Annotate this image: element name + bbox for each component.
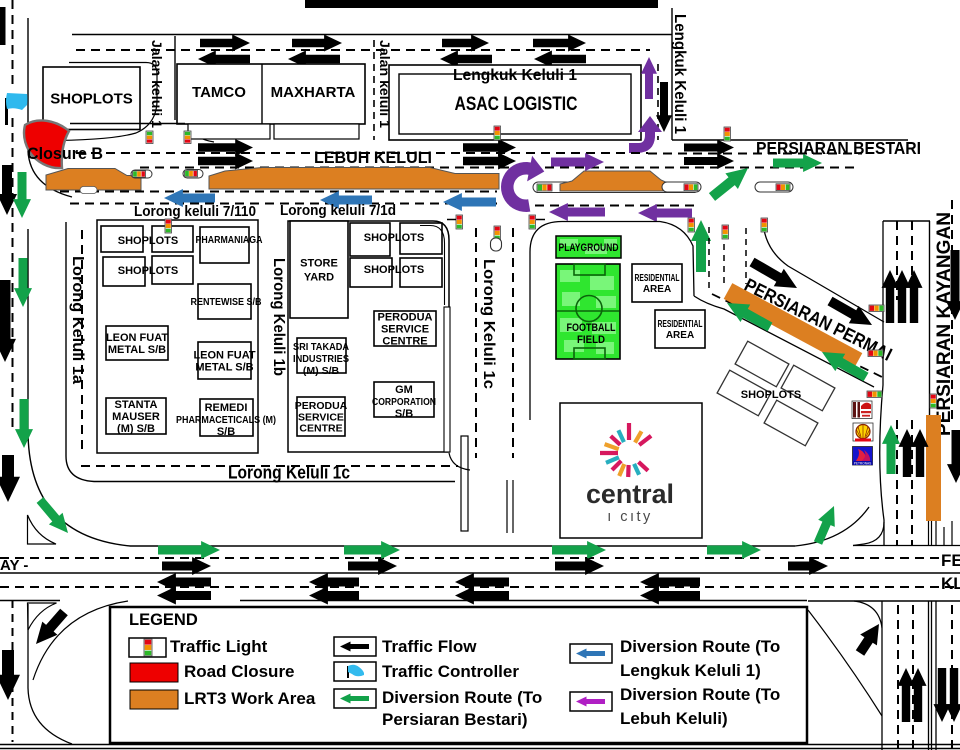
svg-text:PLAYGROUND: PLAYGROUND [559, 242, 619, 254]
svg-text:Lengkuk Keluli 1): Lengkuk Keluli 1) [620, 661, 761, 680]
svg-text:RENTEWISE S/B: RENTEWISE S/B [191, 296, 262, 308]
svg-text:METAL S/B: METAL S/B [195, 361, 253, 373]
svg-text:FOOTBALL: FOOTBALL [567, 322, 616, 334]
svg-text:Lorong Keluli 1c: Lorong Keluli 1c [480, 259, 497, 389]
svg-text:Lorong Keluli 1b: Lorong Keluli 1b [270, 258, 287, 376]
svg-text:Lengkuk Keluli 1: Lengkuk Keluli 1 [453, 67, 577, 84]
svg-text:REMEDI: REMEDI [205, 402, 248, 414]
svg-text:LEBUH KELULI: LEBUH KELULI [314, 148, 432, 167]
svg-text:LEGEND: LEGEND [129, 611, 198, 629]
svg-text:KL: KL [941, 574, 960, 593]
svg-text:central: central [586, 479, 674, 509]
svg-text:MAUSER: MAUSER [112, 411, 160, 423]
svg-text:AREA: AREA [666, 330, 694, 341]
svg-text:ı cıty: ı cıty [607, 509, 653, 525]
svg-text:LRT3 Work Area: LRT3 Work Area [184, 689, 316, 708]
svg-text:Lorong keluli 7/110: Lorong keluli 7/110 [134, 203, 256, 220]
svg-text:AREA: AREA [643, 284, 671, 295]
svg-text:SERVICE: SERVICE [298, 411, 344, 423]
svg-text:PERSIARAN KAYANGAN: PERSIARAN KAYANGAN [934, 212, 955, 436]
svg-text:MAXHARTA: MAXHARTA [271, 84, 356, 101]
svg-text:PERSIARAN BESTARI: PERSIARAN BESTARI [756, 138, 921, 158]
svg-text:S/B: S/B [395, 408, 413, 420]
svg-text:Diversion Route (To: Diversion Route (To [620, 637, 780, 656]
svg-text:YARD: YARD [304, 272, 334, 284]
svg-text:FIELD: FIELD [577, 334, 605, 346]
svg-text:SHOPLOTS: SHOPLOTS [364, 264, 425, 276]
svg-text:CORPORATION: CORPORATION [372, 396, 436, 408]
svg-text:SERVICE: SERVICE [381, 324, 429, 336]
svg-text:Lorong Keluli 1a: Lorong Keluli 1a [69, 256, 86, 384]
svg-text:SHOPLOTS: SHOPLOTS [50, 91, 133, 108]
svg-text:RESIDENTIAL: RESIDENTIAL [658, 319, 703, 330]
svg-text:Traffic Light: Traffic Light [170, 637, 268, 656]
svg-text:PHARMACETICALS (M): PHARMACETICALS (M) [176, 414, 276, 426]
svg-text:PERODUA: PERODUA [295, 400, 348, 412]
svg-text:AY -: AY - [0, 557, 28, 574]
svg-text:PERODUA: PERODUA [377, 312, 432, 324]
svg-text:Jalan keluli 1: Jalan keluli 1 [149, 40, 165, 128]
svg-text:Lengkuk Keluli 1: Lengkuk Keluli 1 [671, 14, 688, 134]
svg-text:Diversion Route (To: Diversion Route (To [620, 685, 780, 704]
svg-text:SHOPLOTS: SHOPLOTS [364, 232, 425, 244]
svg-text:SHOPLOTS: SHOPLOTS [118, 265, 179, 277]
svg-text:Road Closure: Road Closure [184, 662, 295, 681]
svg-text:S/B: S/B [217, 426, 235, 438]
svg-text:Lorong keluli 7/1d: Lorong keluli 7/1d [280, 202, 396, 219]
svg-text:METAL S/B: METAL S/B [108, 344, 166, 356]
svg-text:PETRONAS: PETRONAS [854, 461, 872, 465]
svg-text:LEON FUAT: LEON FUAT [106, 332, 168, 344]
svg-text:SHOPLOTS: SHOPLOTS [741, 389, 802, 401]
svg-text:RESIDENTIAL: RESIDENTIAL [635, 273, 680, 284]
svg-text:SHOPLOTS: SHOPLOTS [118, 235, 179, 247]
svg-text:LEON FUAT: LEON FUAT [193, 350, 255, 362]
svg-text:INDUSTRIES: INDUSTRIES [293, 353, 349, 365]
svg-text:SRI TAKADA: SRI TAKADA [293, 341, 349, 353]
svg-text:Lorong Keluli 1c: Lorong Keluli 1c [228, 463, 350, 483]
svg-text:STANTA: STANTA [115, 399, 158, 411]
svg-text:GM: GM [395, 384, 413, 396]
svg-text:PHARMANIAGA: PHARMANIAGA [196, 234, 263, 246]
svg-text:STORE: STORE [300, 258, 338, 270]
svg-text:ASAC LOGISTIC: ASAC LOGISTIC [455, 94, 578, 115]
svg-text:Persiaran Bestari): Persiaran Bestari) [382, 710, 528, 729]
svg-text:FE: FE [941, 551, 960, 570]
svg-text:Lebuh Keluli): Lebuh Keluli) [620, 709, 728, 728]
svg-text:(M) S/B: (M) S/B [303, 365, 340, 377]
svg-text:Diversion Route (To: Diversion Route (To [382, 688, 542, 707]
svg-text:TAMCO: TAMCO [192, 84, 246, 101]
svg-text:(M) S/B: (M) S/B [117, 423, 155, 435]
svg-text:CENTRE: CENTRE [382, 335, 427, 347]
svg-text:CENTRE: CENTRE [299, 423, 342, 435]
svg-text:Traffic Controller: Traffic Controller [382, 662, 519, 681]
svg-text:Traffic Flow: Traffic Flow [382, 637, 477, 656]
